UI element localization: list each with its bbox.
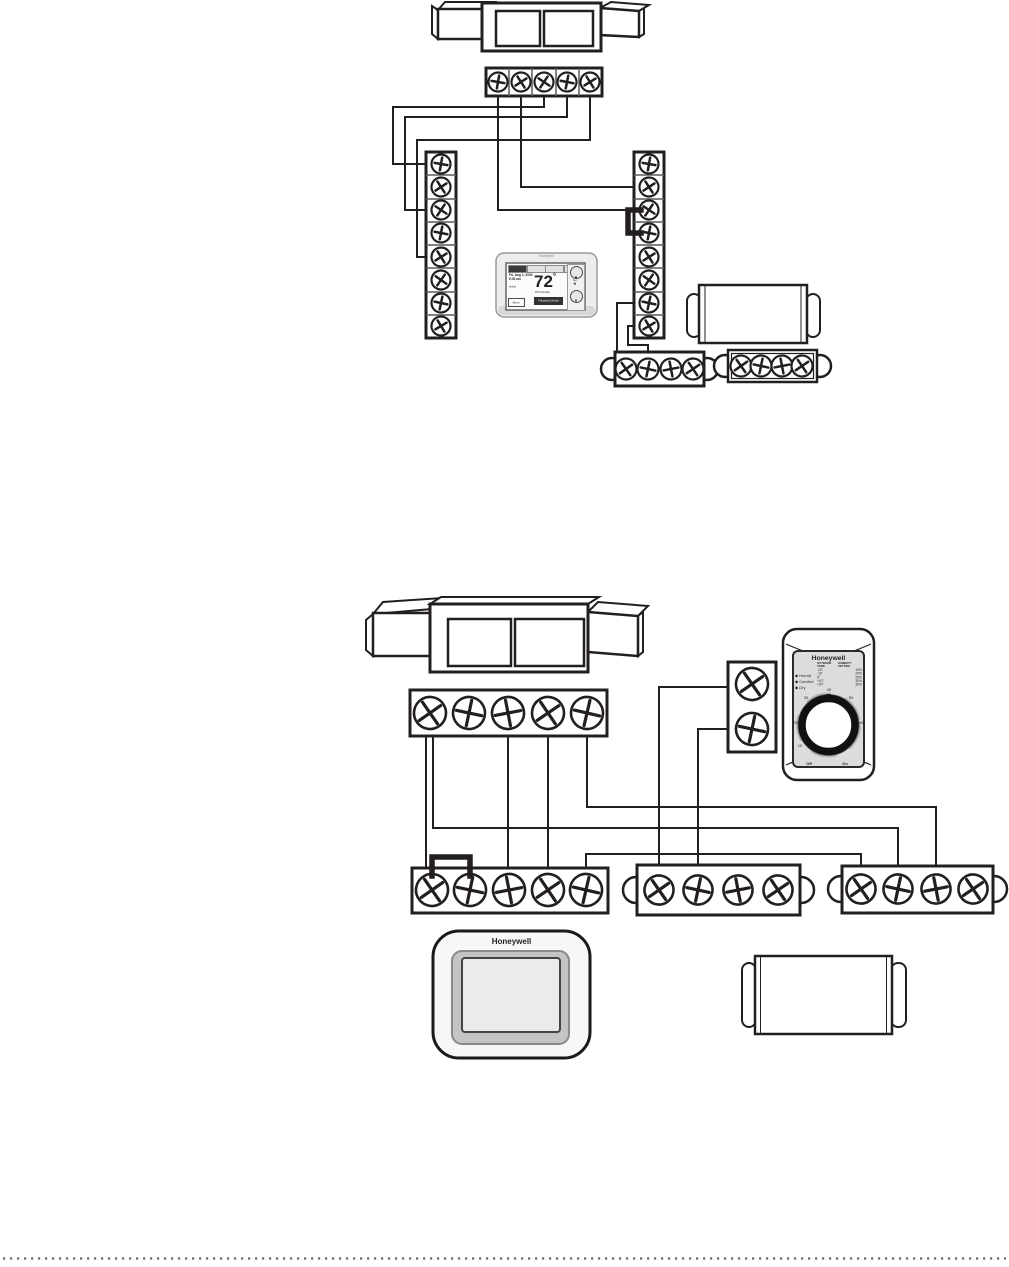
humidistat-overlay: Honeywell ◆ Humid ◆ Comfort ◆ Dry OUTDOO…	[783, 629, 874, 780]
brand-logo: Honeywell	[526, 254, 566, 258]
wiring-diagram-page: Honeywell Fri, Aug 1, 2003 6:30 am Insid…	[0, 0, 1009, 1267]
terminal-block-middle	[623, 865, 814, 915]
air-duct-bottom	[366, 597, 648, 672]
dial-off-label: Off	[804, 761, 814, 766]
screen-temperature: 72°	[534, 272, 556, 292]
right-terminal-strip	[634, 151, 664, 338]
screen-tab	[508, 265, 527, 273]
left-terminal-strip	[426, 151, 456, 338]
two-screw-terminal-block	[728, 662, 776, 752]
dial-number: 50	[846, 695, 856, 700]
screen-inside-label: Inside	[509, 285, 529, 288]
dial-number: 30	[801, 695, 811, 700]
air-duct-top	[432, 2, 649, 51]
temp-down-button: ▼	[570, 290, 583, 303]
wire	[587, 736, 936, 866]
equipment-terminal-strip	[485, 68, 602, 96]
brand-logo: Honeywell	[798, 654, 858, 662]
wire	[698, 729, 728, 865]
set-to-value: 72	[572, 283, 577, 286]
dial-on-label: On	[840, 761, 850, 766]
dial-number: 20	[791, 720, 801, 725]
more-button: More	[508, 298, 525, 307]
wire	[659, 687, 728, 865]
temp-up-button: ▲	[570, 266, 583, 279]
screen-time: 6:30 am	[509, 277, 533, 281]
terminal-block-left	[601, 352, 718, 386]
down-arrow-icon: ▼	[574, 298, 578, 303]
setting-table: OUTDOOR TEMP. HUMIDITY SETTING -20° 15% …	[817, 662, 862, 687]
transformer-bottom	[742, 956, 906, 1034]
transformer-top	[687, 285, 820, 343]
wire	[521, 96, 634, 187]
thermostat-terminal-strip	[410, 868, 608, 913]
dial-number: 40	[824, 687, 834, 692]
equipment-terminal-strip-bottom	[408, 690, 607, 736]
thermostat-small-overlay: Honeywell Fri, Aug 1, 2003 6:30 am Insid…	[496, 253, 597, 317]
dial-number: 60	[856, 720, 866, 725]
terminal-block-right	[714, 350, 831, 382]
dial-number: 10	[795, 743, 805, 748]
table-row: +20° 35%	[817, 683, 862, 687]
diamond-icon: ◆	[795, 673, 798, 678]
diamond-icon: ◆	[795, 679, 798, 684]
screen-humidity: 45% Humidity	[535, 291, 556, 294]
terminal-block-far-right	[828, 866, 1007, 913]
diamond-icon: ◆	[795, 685, 798, 690]
thermostat-large	[433, 931, 590, 1058]
screen-status-bar: Following Schedule	[534, 297, 563, 305]
brand-logo: Honeywell	[433, 937, 590, 946]
